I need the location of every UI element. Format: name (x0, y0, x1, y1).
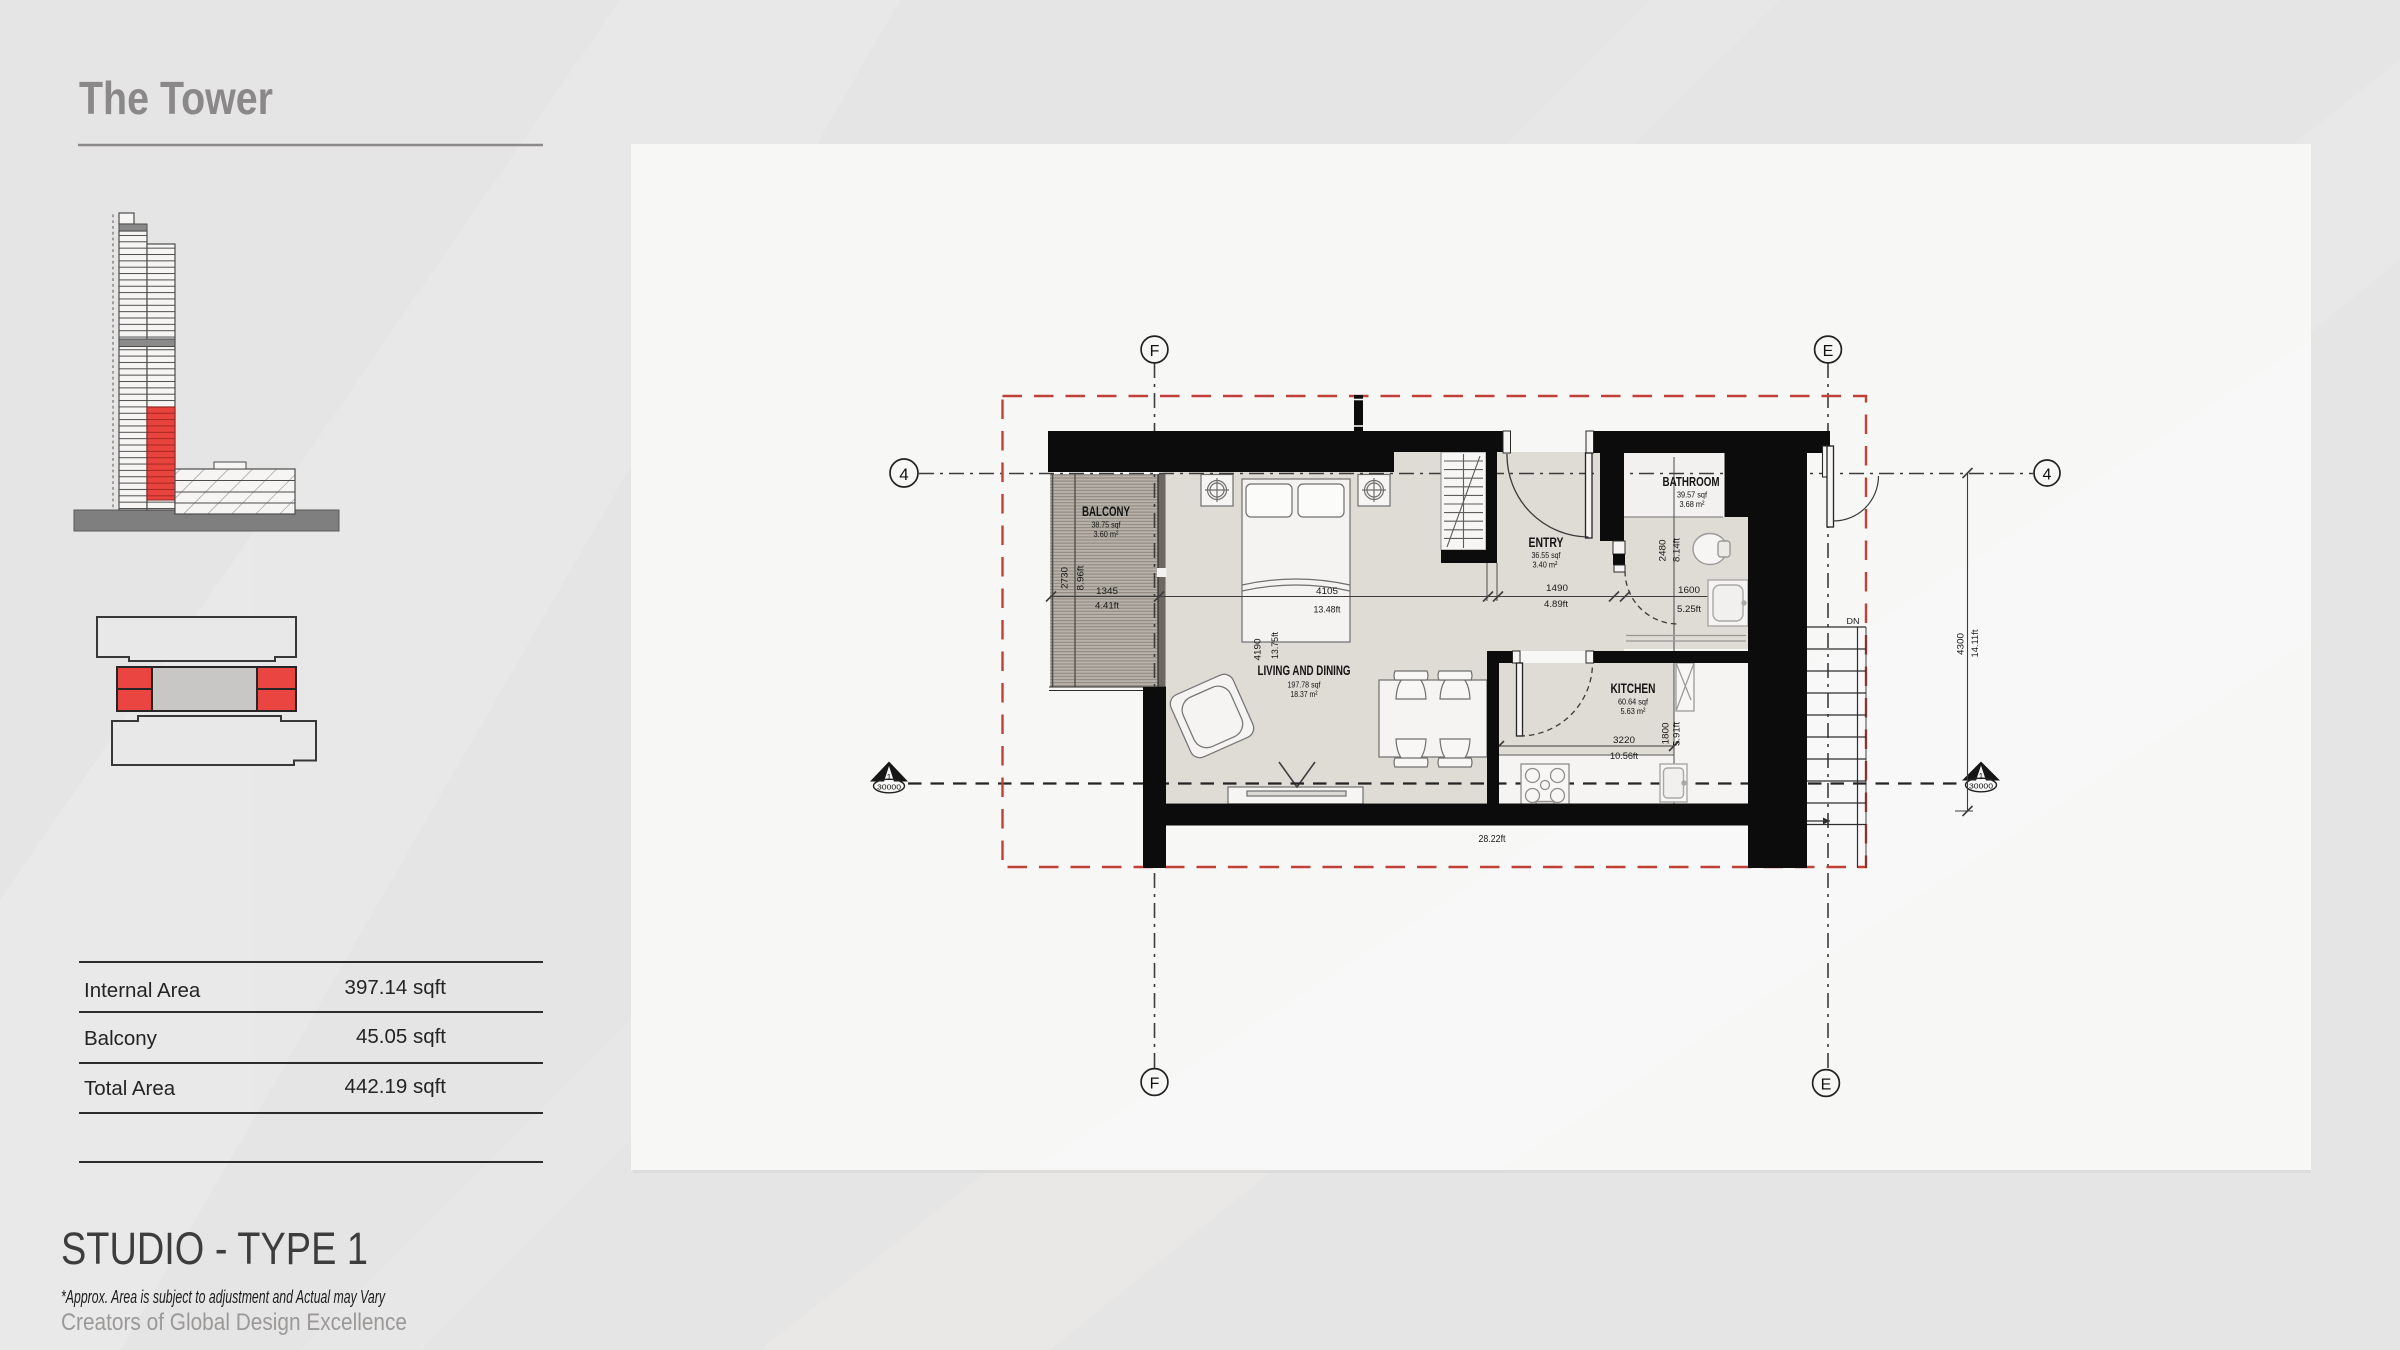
svg-text:1: 1 (887, 773, 892, 782)
svg-text:8.14ft: 8.14ft (1672, 538, 1683, 562)
svg-text:2730: 2730 (1060, 567, 1071, 589)
svg-text:4: 4 (2043, 467, 2052, 484)
svg-text:30000: 30000 (1969, 782, 1993, 791)
svg-text:STUDIO - TYPE 1: STUDIO - TYPE 1 (61, 1223, 368, 1274)
svg-text:4: 4 (899, 465, 908, 484)
svg-text:18.37 m²: 18.37 m² (1291, 689, 1318, 699)
svg-text:4105: 4105 (1316, 586, 1338, 597)
svg-text:The Tower: The Tower (79, 72, 273, 124)
svg-text:38.75 sqf: 38.75 sqf (1092, 520, 1122, 530)
svg-text:13.75ft: 13.75ft (1270, 632, 1281, 659)
svg-text:13.48ft: 13.48ft (1314, 605, 1341, 616)
svg-text:8.96ft: 8.96ft (1076, 565, 1087, 590)
svg-text:2480: 2480 (1658, 540, 1669, 562)
svg-text:ENTRY: ENTRY (1529, 535, 1564, 550)
svg-text:60.64 sqf: 60.64 sqf (1618, 697, 1649, 707)
svg-text:10.56ft: 10.56ft (1610, 751, 1638, 762)
svg-text:397.14 sqft: 397.14 sqft (345, 976, 447, 999)
svg-text:442.19 sqft: 442.19 sqft (345, 1075, 447, 1098)
svg-text:28.22ft: 28.22ft (1479, 834, 1506, 845)
svg-text:1345: 1345 (1096, 586, 1118, 597)
svg-text:197.78 sqf: 197.78 sqf (1288, 680, 1322, 690)
svg-text:F: F (1150, 343, 1160, 360)
svg-text:BATHROOM: BATHROOM (1663, 475, 1720, 489)
svg-text:1600: 1600 (1678, 585, 1700, 596)
svg-text:36.55 sqf: 36.55 sqf (1532, 550, 1562, 560)
svg-text:E: E (1823, 343, 1834, 360)
svg-text:BALCONY: BALCONY (1082, 504, 1130, 519)
svg-text:4190: 4190 (1253, 639, 1264, 661)
svg-text:14.11ft: 14.11ft (1970, 629, 1981, 657)
svg-text:3.60 m²: 3.60 m² (1094, 529, 1119, 539)
svg-text:3220: 3220 (1613, 735, 1635, 746)
svg-text:5.25ft: 5.25ft (1677, 604, 1701, 615)
svg-text:30000: 30000 (877, 783, 901, 792)
svg-text:3.68 m²: 3.68 m² (1680, 499, 1705, 509)
svg-text:*Approx. Area is subject to ad: *Approx. Area is subject to adjustment a… (61, 1286, 386, 1307)
svg-text:3.40 m²: 3.40 m² (1533, 560, 1558, 570)
svg-text:F: F (1150, 1076, 1160, 1093)
svg-text:39.57 sqf: 39.57 sqf (1677, 490, 1708, 500)
svg-text:Internal Area: Internal Area (84, 979, 201, 1002)
svg-text:5.91ft: 5.91ft (1672, 722, 1683, 746)
svg-text:1800: 1800 (1661, 723, 1672, 745)
svg-text:E: E (1821, 1077, 1832, 1094)
svg-text:45.05 sqft: 45.05 sqft (356, 1025, 446, 1048)
svg-text:Creators of Global Design Exce: Creators of Global Design Excellence (61, 1309, 407, 1336)
svg-text:4300: 4300 (1956, 633, 1967, 655)
svg-text:1490: 1490 (1546, 583, 1568, 594)
svg-text:KITCHEN: KITCHEN (1611, 681, 1656, 696)
svg-text:4.89ft: 4.89ft (1544, 599, 1568, 610)
svg-text:LIVING AND DINING: LIVING AND DINING (1258, 663, 1351, 678)
svg-text:1: 1 (1979, 772, 1984, 781)
svg-text:Total Area: Total Area (84, 1077, 176, 1100)
svg-text:Balcony: Balcony (84, 1027, 158, 1050)
svg-text:4.41ft: 4.41ft (1095, 601, 1119, 612)
svg-text:5.63 m²: 5.63 m² (1621, 706, 1646, 716)
svg-text:DN: DN (1847, 616, 1860, 626)
